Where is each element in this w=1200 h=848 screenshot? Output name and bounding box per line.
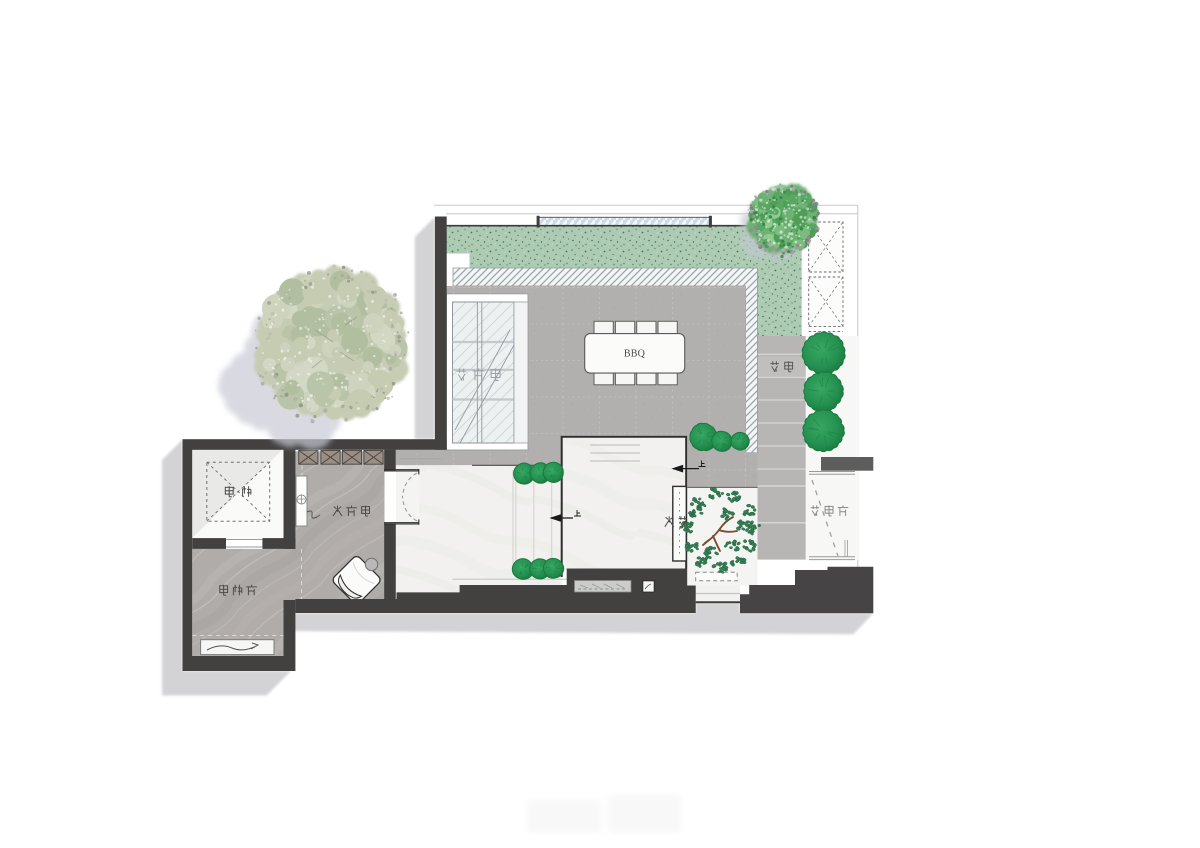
svg-text:BBQ: BBQ [624, 349, 646, 360]
